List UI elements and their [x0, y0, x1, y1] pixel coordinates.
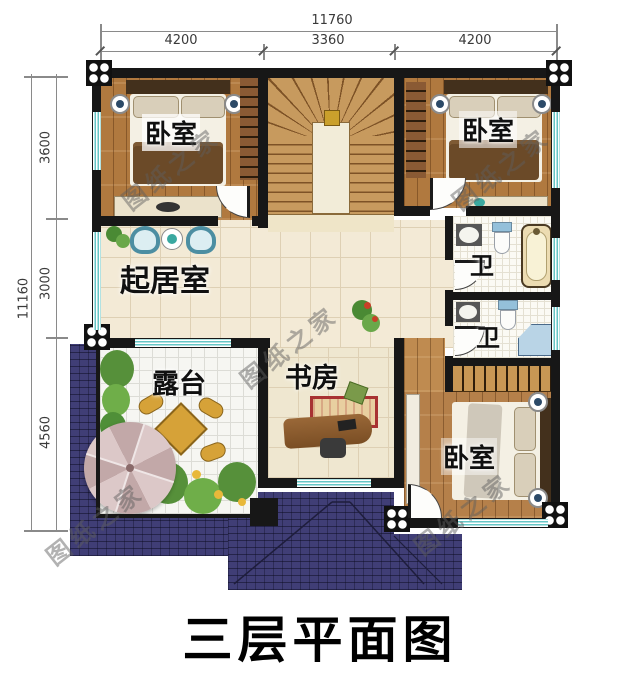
toilet-bowl — [494, 232, 510, 254]
stair-newel — [324, 110, 340, 126]
armchair — [130, 226, 160, 254]
stair-flight-left — [268, 136, 312, 214]
toilet — [492, 222, 512, 232]
corner-column — [384, 506, 410, 532]
window — [297, 479, 371, 487]
stair-landing — [268, 214, 394, 232]
window — [552, 307, 560, 350]
window — [93, 232, 101, 330]
dim-left-total: 11160 — [17, 269, 32, 329]
wall — [445, 292, 560, 300]
umbrella-top — [126, 464, 134, 472]
wall — [466, 206, 560, 216]
floor-hallway — [404, 338, 445, 392]
wardrobe — [406, 82, 426, 178]
bed-headboard — [538, 398, 552, 502]
nightstand-lamp — [528, 392, 548, 412]
window — [93, 112, 101, 170]
terrace-shrub — [100, 350, 134, 388]
wall-stub — [250, 498, 278, 526]
wall — [394, 338, 404, 486]
dim-top-seg2: 3360 — [298, 33, 358, 48]
nightstand-lamp — [430, 94, 450, 114]
wall — [92, 216, 218, 226]
corner-column — [86, 60, 112, 86]
sink-basin — [459, 305, 477, 319]
wall — [92, 68, 560, 78]
plant-berries — [364, 302, 371, 309]
wardrobe — [240, 78, 258, 180]
room-label-bathroom-upper: 卫 — [470, 246, 494, 281]
side-table-decor — [167, 234, 177, 244]
room-label-living-room: 起居室 — [120, 256, 210, 300]
corner-column — [546, 60, 572, 86]
bed-headboard — [444, 80, 548, 94]
pillow — [514, 407, 536, 451]
terrace-shrub — [218, 462, 256, 502]
dim-tick — [46, 337, 68, 339]
dim-line-top-total — [100, 31, 557, 32]
toilet — [498, 300, 518, 310]
terrace-flower — [214, 490, 223, 499]
wall-parapet — [96, 348, 100, 518]
dim-line-left-segments — [56, 74, 57, 532]
closet — [453, 362, 553, 392]
wall — [394, 206, 430, 216]
potted-plant — [116, 234, 130, 248]
dim-top-total: 11760 — [302, 13, 362, 28]
window — [552, 112, 560, 188]
bed-headboard — [126, 80, 230, 94]
page-title: 三层平面图 — [140, 600, 500, 672]
floor-plan-canvas: 11760 4200 3360 4200 11160 3600 3000 456… — [0, 0, 640, 685]
room-label-bathroom-lower: 卫 — [476, 318, 500, 353]
dim-left-seg3: 4560 — [39, 403, 54, 463]
room-label-terrace: 露台 — [152, 362, 206, 401]
dim-top-seg3: 4200 — [445, 33, 505, 48]
dim-tick — [46, 218, 68, 220]
terrace-flower — [238, 498, 246, 506]
desk-chair — [320, 438, 346, 458]
window — [552, 238, 560, 280]
nightstand-lamp — [110, 94, 130, 114]
dim-tick — [24, 76, 68, 78]
dim-tick — [394, 44, 396, 60]
dresser-bowl — [156, 202, 180, 212]
armchair — [186, 226, 216, 254]
dim-tick — [556, 24, 558, 60]
bathtub-basin — [526, 231, 547, 281]
dim-tick — [100, 24, 102, 60]
sink-basin — [459, 227, 479, 243]
terrace-shrub — [102, 384, 130, 416]
terrace-flower — [192, 470, 201, 479]
dim-left-seg2: 3000 — [39, 254, 54, 314]
wall — [394, 68, 404, 216]
stair-flight-right — [350, 136, 394, 214]
dim-left-seg1: 3600 — [39, 118, 54, 178]
wall — [252, 216, 268, 226]
wall — [258, 68, 268, 228]
window — [135, 339, 231, 347]
wall — [445, 216, 453, 260]
stair-void — [312, 122, 350, 214]
bathtub-drain — [533, 228, 540, 235]
dim-tick — [263, 44, 265, 60]
dim-top-seg1: 4200 — [151, 33, 211, 48]
dim-line-top-segments — [100, 51, 557, 52]
nightstand-lamp — [532, 94, 552, 114]
wall — [445, 358, 560, 366]
toilet-bowl — [500, 310, 516, 330]
plant-berries — [372, 316, 378, 322]
